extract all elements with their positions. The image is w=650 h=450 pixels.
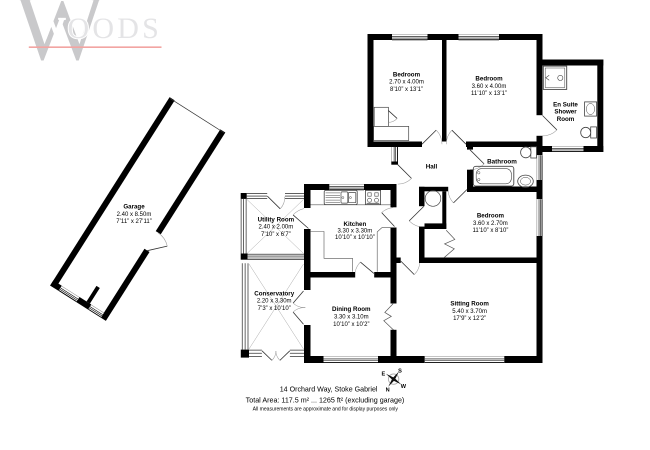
svg-text:3.60 x 4.00m: 3.60 x 4.00m	[472, 84, 507, 90]
svg-text:10’10” x 10’10”: 10’10” x 10’10”	[335, 235, 375, 241]
svg-text:11’10” x 8’10”: 11’10” x 8’10”	[472, 228, 508, 234]
svg-text:N: N	[386, 388, 390, 394]
svg-text:Hall: Hall	[426, 163, 438, 170]
svg-text:Bedroom: Bedroom	[475, 75, 503, 82]
svg-text:8’10” x 13’1”: 8’10” x 13’1”	[390, 87, 423, 93]
svg-text:S: S	[398, 369, 402, 375]
svg-text:E: E	[382, 372, 386, 378]
svg-text:All measurements are approxima: All measurements are approximate and for…	[253, 406, 399, 412]
svg-text:Dining Room: Dining Room	[332, 306, 371, 313]
svg-text:3.30 x 3.10m: 3.30 x 3.10m	[334, 315, 369, 321]
svg-text:W: W	[37, 12, 66, 45]
svg-text:3.30 x 3.30m: 3.30 x 3.30m	[338, 228, 373, 234]
svg-text:Bedroom: Bedroom	[393, 71, 421, 78]
svg-text:En Suite: En Suite	[553, 101, 578, 108]
svg-text:Sitting Room: Sitting Room	[450, 300, 489, 307]
svg-text:Total Area: 117.5 m² ... 1265: Total Area: 117.5 m² ... 1265 ft² (exclu…	[246, 396, 405, 404]
svg-text:Garage: Garage	[123, 203, 145, 210]
svg-text:17’9” x 12’2”: 17’9” x 12’2”	[453, 316, 486, 322]
svg-text:Shower: Shower	[554, 109, 577, 116]
svg-text:7’10” x 6’7”: 7’10” x 6’7”	[261, 232, 291, 238]
svg-text:14 Orchard Way, Stoke Gabriel: 14 Orchard Way, Stoke Gabriel	[280, 386, 378, 394]
svg-text:2.70 x 4.00m: 2.70 x 4.00m	[389, 80, 424, 86]
svg-text:Utility Room: Utility Room	[258, 216, 295, 223]
svg-text:2.40 x 2.00m: 2.40 x 2.00m	[259, 225, 294, 231]
svg-text:Bedroom: Bedroom	[477, 212, 505, 219]
svg-text:7’11” x 27’11”: 7’11” x 27’11”	[116, 219, 151, 225]
svg-text:W: W	[401, 384, 407, 390]
svg-text:2.20 x 3.30m: 2.20 x 3.30m	[257, 299, 292, 305]
svg-text:7’3” x 10’10”: 7’3” x 10’10”	[258, 306, 291, 312]
svg-text:2.40 x 8.50m: 2.40 x 8.50m	[117, 212, 152, 218]
svg-text:Bathroom: Bathroom	[487, 159, 517, 166]
svg-text:OODS: OODS	[68, 12, 162, 45]
svg-text:Conservatory: Conservatory	[254, 290, 294, 297]
svg-text:11’10” x 13’1”: 11’10” x 13’1”	[471, 91, 507, 97]
svg-text:5.40 x 3.70m: 5.40 x 3.70m	[452, 309, 487, 315]
svg-text:Kitchen: Kitchen	[344, 221, 367, 228]
svg-text:Room: Room	[557, 116, 575, 123]
svg-text:3.60 x 2.70m: 3.60 x 2.70m	[473, 221, 508, 227]
svg-text:10’10” x 10’2”: 10’10” x 10’2”	[333, 322, 369, 328]
